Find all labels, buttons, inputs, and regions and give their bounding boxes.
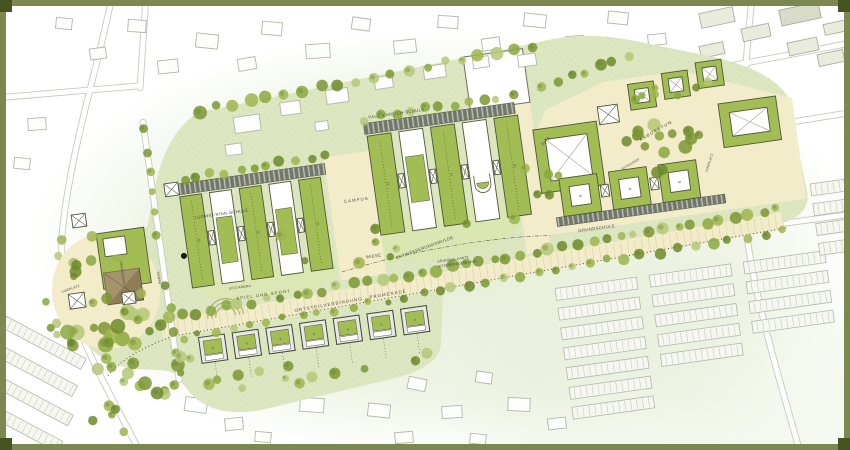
tree — [88, 416, 97, 425]
site-plan-canvas: IVIVIVIVIVIVIIIIIIIIIIIIIIIIIIIIIII LUDW… — [0, 0, 850, 450]
context-building — [128, 19, 147, 32]
tree — [57, 235, 67, 245]
context-building — [647, 33, 666, 46]
context-building — [255, 431, 272, 442]
frame-corner-br — [838, 438, 850, 450]
context-building — [225, 143, 242, 156]
frame-corner-tr — [838, 0, 850, 12]
context-building — [395, 431, 414, 444]
context-building — [306, 43, 331, 59]
context-building — [261, 21, 282, 36]
tree-shade — [109, 412, 112, 415]
context-building — [28, 117, 47, 130]
context-building — [508, 397, 531, 411]
context-building — [233, 114, 261, 133]
tree-shade — [112, 406, 116, 410]
context-building — [280, 100, 302, 116]
context-building — [438, 15, 459, 28]
context-building — [315, 121, 329, 132]
context-building — [442, 405, 463, 418]
site-plan-frame: IVIVIVIVIVIVIIIIIIIIIIIIIIIIIIIIIII LUDW… — [0, 0, 850, 450]
context-building — [55, 17, 72, 30]
context-building — [237, 57, 257, 72]
tree — [47, 324, 55, 332]
context-building — [89, 47, 106, 60]
context-building — [607, 11, 628, 25]
tree — [119, 428, 128, 437]
frame-corner-bl — [0, 438, 12, 450]
context-building — [393, 39, 416, 54]
context-building — [517, 53, 536, 67]
tree-shade — [68, 339, 72, 343]
tree-shade — [105, 402, 110, 407]
tree — [53, 331, 61, 339]
context-building — [367, 403, 390, 418]
tree — [42, 298, 50, 306]
context-building — [470, 433, 487, 445]
context-building — [157, 59, 178, 74]
context-building — [547, 417, 566, 430]
context-building — [195, 33, 218, 49]
context-building — [13, 157, 30, 170]
context-building — [523, 13, 546, 28]
context-building — [224, 417, 243, 431]
context-building — [351, 17, 370, 31]
frame-corner-tl — [0, 0, 12, 12]
context-building — [475, 371, 492, 384]
